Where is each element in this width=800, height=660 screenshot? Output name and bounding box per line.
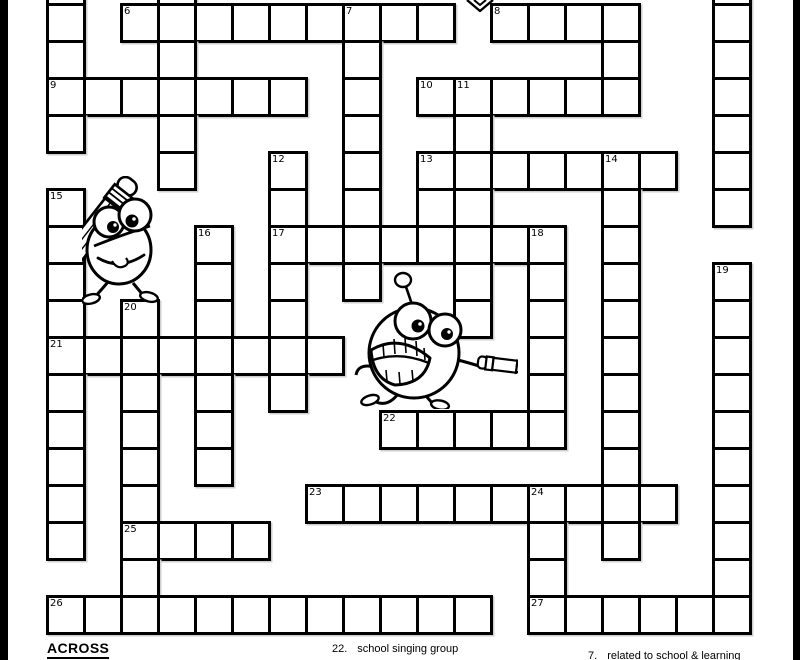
grid-cell[interactable] <box>712 262 752 302</box>
grid-cell[interactable] <box>712 151 752 191</box>
chevron-down-icon <box>464 0 496 13</box>
grid-cell[interactable] <box>83 336 123 376</box>
grid-cell[interactable] <box>194 447 234 487</box>
grid-cell[interactable] <box>601 336 641 376</box>
grid-cell[interactable] <box>527 151 567 191</box>
grid-cell[interactable] <box>712 558 752 598</box>
grid-cell[interactable] <box>120 595 160 635</box>
grid-cell[interactable] <box>194 262 234 302</box>
grid-cell[interactable] <box>120 447 160 487</box>
grid-cell[interactable] <box>342 484 382 524</box>
grid-cell[interactable] <box>601 521 641 561</box>
grid-cell[interactable] <box>342 151 382 191</box>
grid-cell[interactable] <box>453 225 493 265</box>
grid-cell[interactable] <box>46 262 86 302</box>
grid-cell[interactable] <box>564 77 604 117</box>
grid-cell[interactable] <box>342 114 382 154</box>
grid-cell[interactable] <box>601 188 641 228</box>
grid-cell[interactable] <box>712 410 752 450</box>
grid-cell[interactable] <box>157 336 197 376</box>
grid-cell[interactable] <box>268 595 308 635</box>
grid-cell[interactable] <box>527 262 567 302</box>
grid-cell[interactable] <box>120 3 160 43</box>
grid-cell[interactable] <box>675 595 715 635</box>
grid-cell[interactable] <box>157 77 197 117</box>
clue-text: related to school & learning <box>607 650 740 660</box>
grid-cell[interactable] <box>194 3 234 43</box>
grid-cell[interactable] <box>712 447 752 487</box>
grid-cell[interactable] <box>46 3 86 43</box>
clue-item-7-down: 7. related to school & learning <box>588 650 741 660</box>
grid-cell[interactable] <box>638 151 678 191</box>
grid-cell[interactable] <box>712 77 752 117</box>
grid-cell[interactable] <box>416 225 456 265</box>
grid-cell[interactable] <box>527 3 567 43</box>
grid-cell[interactable] <box>527 484 567 524</box>
grid-cell[interactable] <box>601 410 641 450</box>
grid-cell[interactable] <box>157 521 197 561</box>
grid-cell[interactable] <box>268 262 308 302</box>
grid-cell[interactable] <box>379 225 419 265</box>
grid-cell[interactable] <box>601 262 641 302</box>
grid-cell[interactable] <box>342 595 382 635</box>
grid-cell[interactable] <box>527 299 567 339</box>
grid-cell[interactable] <box>712 521 752 561</box>
grid-cell[interactable] <box>120 373 160 413</box>
grid-cell[interactable] <box>416 595 456 635</box>
grid-cell[interactable] <box>712 595 752 635</box>
grid-cell[interactable] <box>601 225 641 265</box>
grid-cell[interactable] <box>157 595 197 635</box>
grid-cell[interactable] <box>305 3 345 43</box>
grid-cell[interactable] <box>268 151 308 191</box>
grid-cell[interactable] <box>490 3 530 43</box>
grid-cell[interactable] <box>379 3 419 43</box>
grid-cell[interactable] <box>453 410 493 450</box>
grid-cell[interactable] <box>453 595 493 635</box>
grid-cell[interactable] <box>342 77 382 117</box>
grid-cell[interactable] <box>305 225 345 265</box>
grid-cell[interactable] <box>46 484 86 524</box>
grid-cell[interactable] <box>712 40 752 80</box>
grid-cell[interactable] <box>564 595 604 635</box>
grid-cell[interactable] <box>194 410 234 450</box>
grid-cell[interactable] <box>268 373 308 413</box>
grid-cell[interactable] <box>712 3 752 43</box>
grid-cell[interactable] <box>453 77 493 117</box>
grid-cell[interactable] <box>564 3 604 43</box>
grid-cell[interactable] <box>601 484 641 524</box>
grid-cell[interactable] <box>268 3 308 43</box>
grid-cell[interactable] <box>416 151 456 191</box>
grid-cell[interactable] <box>120 77 160 117</box>
grid-cell[interactable] <box>46 336 86 376</box>
grid-cell[interactable] <box>120 558 160 598</box>
grid-cell[interactable] <box>46 114 86 154</box>
grid-cell[interactable] <box>601 77 641 117</box>
grid-cell[interactable] <box>342 3 382 43</box>
grid-cell[interactable] <box>268 77 308 117</box>
grid-cell[interactable] <box>379 410 419 450</box>
grid-cell[interactable] <box>601 40 641 80</box>
grid-cell[interactable] <box>268 225 308 265</box>
grid-cell[interactable] <box>490 410 530 450</box>
grid-cell[interactable] <box>231 595 271 635</box>
grid-cell[interactable] <box>46 595 86 635</box>
grid-cell[interactable] <box>453 151 493 191</box>
grid-cell[interactable] <box>527 558 567 598</box>
grid-cell[interactable] <box>527 336 567 376</box>
grid-cell[interactable] <box>601 151 641 191</box>
grid-cell[interactable] <box>46 188 86 228</box>
clue-number: 7. <box>588 650 597 660</box>
grid-cell[interactable] <box>453 114 493 154</box>
grid-cell[interactable] <box>157 114 197 154</box>
clue-text: school singing group <box>357 643 458 655</box>
grid-cell[interactable] <box>231 336 271 376</box>
grid-cell[interactable] <box>305 595 345 635</box>
grid-cell[interactable] <box>120 521 160 561</box>
grid-cell[interactable] <box>601 3 641 43</box>
grid-cell[interactable] <box>453 188 493 228</box>
grid-cell[interactable] <box>83 77 123 117</box>
grid-cell[interactable] <box>157 40 197 80</box>
grid-cell[interactable] <box>231 3 271 43</box>
grid-cell[interactable] <box>527 410 567 450</box>
grid-cell[interactable] <box>490 151 530 191</box>
grid-cell[interactable] <box>527 77 567 117</box>
grid-cell[interactable] <box>490 77 530 117</box>
grid-cell[interactable] <box>453 484 493 524</box>
grid-cell[interactable] <box>342 225 382 265</box>
grid-cell[interactable] <box>157 3 197 43</box>
grid-cell[interactable] <box>120 410 160 450</box>
grid-cell[interactable] <box>342 188 382 228</box>
grid-cell[interactable] <box>712 299 752 339</box>
grid-cell[interactable] <box>194 373 234 413</box>
left-page-edge <box>0 0 8 660</box>
grid-cell[interactable] <box>527 373 567 413</box>
grid-cell[interactable] <box>46 521 86 561</box>
grid-cell[interactable] <box>712 484 752 524</box>
grid-cell[interactable] <box>712 188 752 228</box>
grid-cell[interactable] <box>564 484 604 524</box>
grid-cell[interactable] <box>46 299 86 339</box>
grid-cell[interactable] <box>712 373 752 413</box>
grid-cell[interactable] <box>46 447 86 487</box>
grid-cell[interactable] <box>527 595 567 635</box>
grid-cell[interactable] <box>46 410 86 450</box>
grid-cell[interactable] <box>564 151 604 191</box>
grid-cell[interactable] <box>712 336 752 376</box>
grid-cell[interactable] <box>712 114 752 154</box>
grid-cell[interactable] <box>46 373 86 413</box>
grid-cell[interactable] <box>601 595 641 635</box>
grid-cell[interactable] <box>416 484 456 524</box>
right-page-edge <box>793 0 800 660</box>
grid-cell[interactable] <box>120 484 160 524</box>
grid-cell[interactable] <box>342 40 382 80</box>
clue-number: 22. <box>332 643 347 655</box>
grid-cell[interactable] <box>601 447 641 487</box>
grid-cell[interactable] <box>194 77 234 117</box>
grid-cell[interactable] <box>46 225 86 265</box>
grid-cell[interactable] <box>416 188 456 228</box>
grid-cell[interactable] <box>527 225 567 265</box>
grid-cell[interactable] <box>527 521 567 561</box>
grid-cell[interactable] <box>490 225 530 265</box>
grid-cell[interactable] <box>46 40 86 80</box>
grid-cell[interactable] <box>231 77 271 117</box>
grid-cell[interactable] <box>194 521 234 561</box>
crossword-worksheet: 6789101112131415161718192021222324252627 <box>0 0 800 660</box>
grid-cell[interactable] <box>46 77 86 117</box>
grid-cell[interactable] <box>601 373 641 413</box>
grid-cell[interactable] <box>490 484 530 524</box>
grid-cell[interactable] <box>194 595 234 635</box>
running-mascot-icon <box>350 267 518 409</box>
grid-cell[interactable] <box>379 595 419 635</box>
grid-cell[interactable] <box>83 595 123 635</box>
grid-cell[interactable] <box>638 484 678 524</box>
grid-cell[interactable] <box>305 484 345 524</box>
grid-cell[interactable] <box>231 521 271 561</box>
grid-cell[interactable] <box>416 410 456 450</box>
grid-cell[interactable] <box>305 336 345 376</box>
grid-cell[interactable] <box>638 595 678 635</box>
grid-cell[interactable] <box>268 336 308 376</box>
grid-cell[interactable] <box>194 299 234 339</box>
grid-cell[interactable] <box>416 77 456 117</box>
grid-cell[interactable] <box>120 336 160 376</box>
grid-cell[interactable] <box>268 188 308 228</box>
grid-cell[interactable] <box>268 299 308 339</box>
grid-cell[interactable] <box>379 484 419 524</box>
pencil-mascot-icon <box>82 176 200 312</box>
grid-cell[interactable] <box>601 299 641 339</box>
grid-cell[interactable] <box>416 3 456 43</box>
across-heading: ACROSS <box>47 640 109 659</box>
grid-cell[interactable] <box>194 336 234 376</box>
clue-item-22-across: 22. school singing group <box>332 643 458 655</box>
grid-cell[interactable] <box>194 225 234 265</box>
